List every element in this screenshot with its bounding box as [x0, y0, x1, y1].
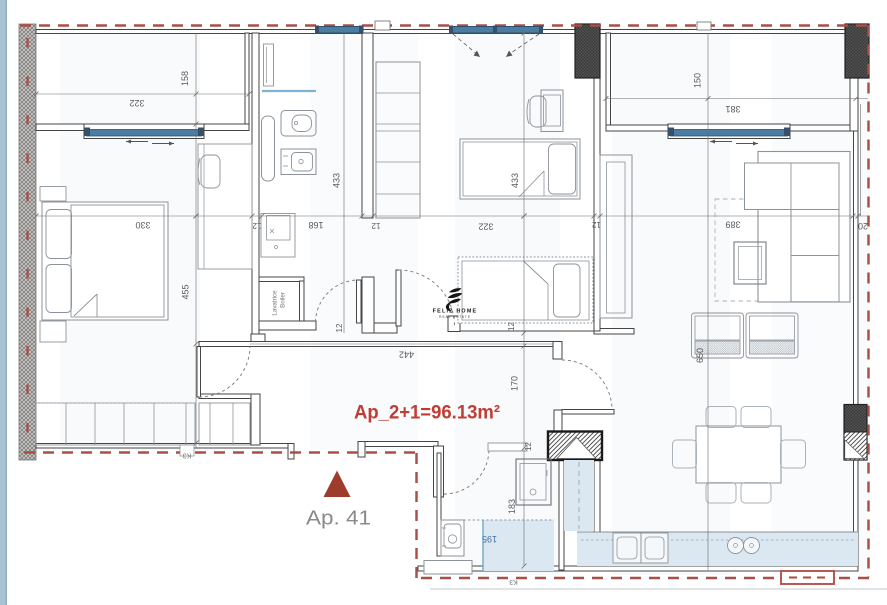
svg-text:650: 650	[695, 348, 705, 363]
svg-text:455: 455	[181, 284, 191, 299]
svg-text:158: 158	[180, 71, 190, 86]
svg-text:389: 389	[725, 220, 740, 230]
svg-text:12: 12	[371, 221, 380, 230]
svg-text:20: 20	[858, 221, 868, 231]
svg-text:Boiler: Boiler	[280, 292, 287, 308]
svg-text:FELIZ HOME: FELIZ HOME	[433, 309, 478, 315]
svg-text:195: 195	[482, 534, 497, 544]
svg-text:330: 330	[135, 220, 150, 230]
svg-text:12: 12	[252, 221, 261, 230]
svg-text:322: 322	[129, 98, 144, 108]
svg-text:K3: K3	[183, 452, 192, 459]
svg-text:12: 12	[335, 323, 344, 332]
svg-text:168: 168	[308, 220, 323, 230]
svg-text:381: 381	[725, 104, 740, 114]
svg-text:433: 433	[510, 173, 520, 188]
svg-text:Lavatrice: Lavatrice	[272, 290, 279, 316]
svg-text:170: 170	[510, 376, 520, 391]
svg-text:150: 150	[693, 73, 703, 88]
svg-text:442: 442	[399, 350, 414, 360]
svg-text:Ap. 41: Ap. 41	[306, 508, 371, 530]
svg-text:12: 12	[524, 442, 533, 451]
svg-text:12: 12	[507, 322, 516, 331]
svg-text:183: 183	[507, 499, 517, 514]
svg-text:REAL ESTATE: REAL ESTATE	[439, 315, 471, 319]
svg-text:Ap_2+1=96.13m²: Ap_2+1=96.13m²	[354, 402, 500, 424]
svg-text:433: 433	[332, 173, 342, 188]
svg-text:K3: K3	[509, 578, 518, 585]
svg-text:322: 322	[478, 222, 493, 232]
svg-text:12: 12	[592, 220, 601, 229]
